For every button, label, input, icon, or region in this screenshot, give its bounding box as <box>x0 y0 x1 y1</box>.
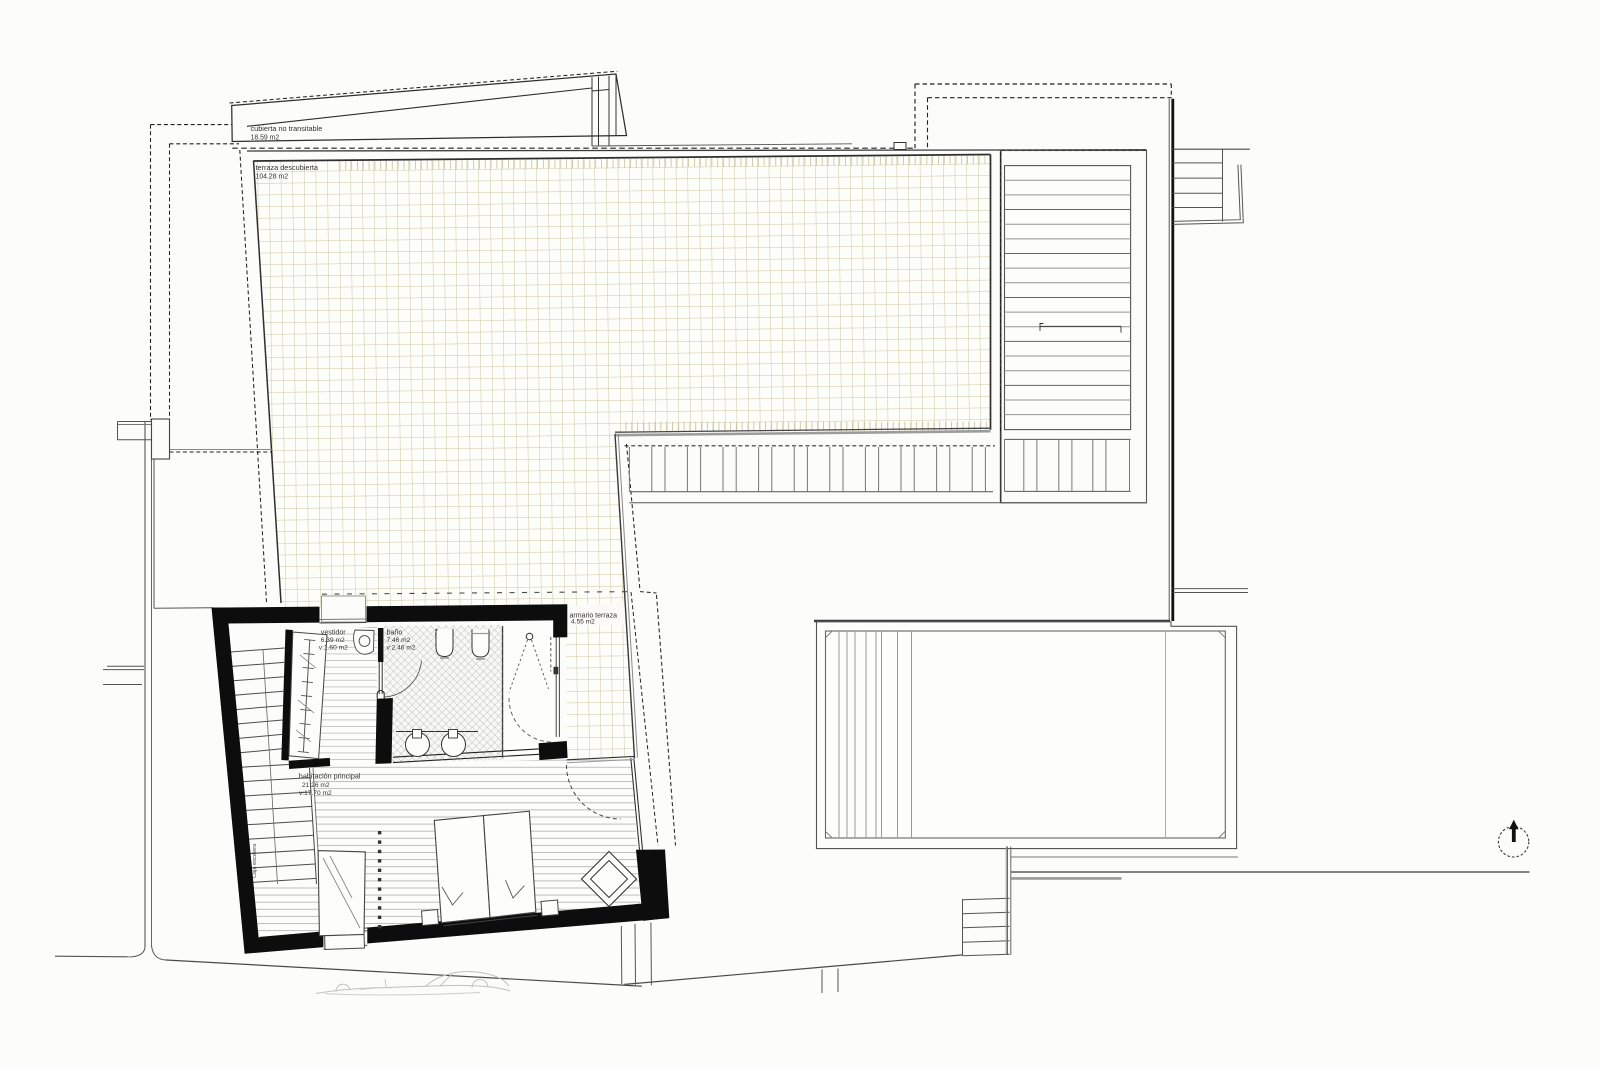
svg-text:104.28 m2: 104.28 m2 <box>256 174 289 181</box>
svg-text:habitación principal: habitación principal <box>299 772 361 781</box>
svg-text:21.26 m2: 21.26 m2 <box>302 782 330 789</box>
svg-text:terraza descubierta: terraza descubierta <box>256 163 319 172</box>
svg-text:v:2.46 m2: v:2.46 m2 <box>387 645 416 652</box>
svg-text:v:17.70 m2: v:17.70 m2 <box>299 790 332 797</box>
svg-text:vestidor: vestidor <box>321 629 346 637</box>
svg-text:6.39 m2: 6.39 m2 <box>321 637 345 644</box>
svg-text:cubierta no transitable: cubierta no transitable <box>251 124 323 133</box>
svg-text:v:1.60 m2: v:1.60 m2 <box>319 645 348 652</box>
svg-text:4.55 m2: 4.55 m2 <box>571 619 595 626</box>
svg-text:18.59 m2: 18.59 m2 <box>251 135 280 142</box>
svg-text:baño: baño <box>387 629 403 637</box>
svg-text:7.46 m2: 7.46 m2 <box>387 637 411 644</box>
svg-text:Caja escalera: Caja escalera <box>252 843 258 878</box>
